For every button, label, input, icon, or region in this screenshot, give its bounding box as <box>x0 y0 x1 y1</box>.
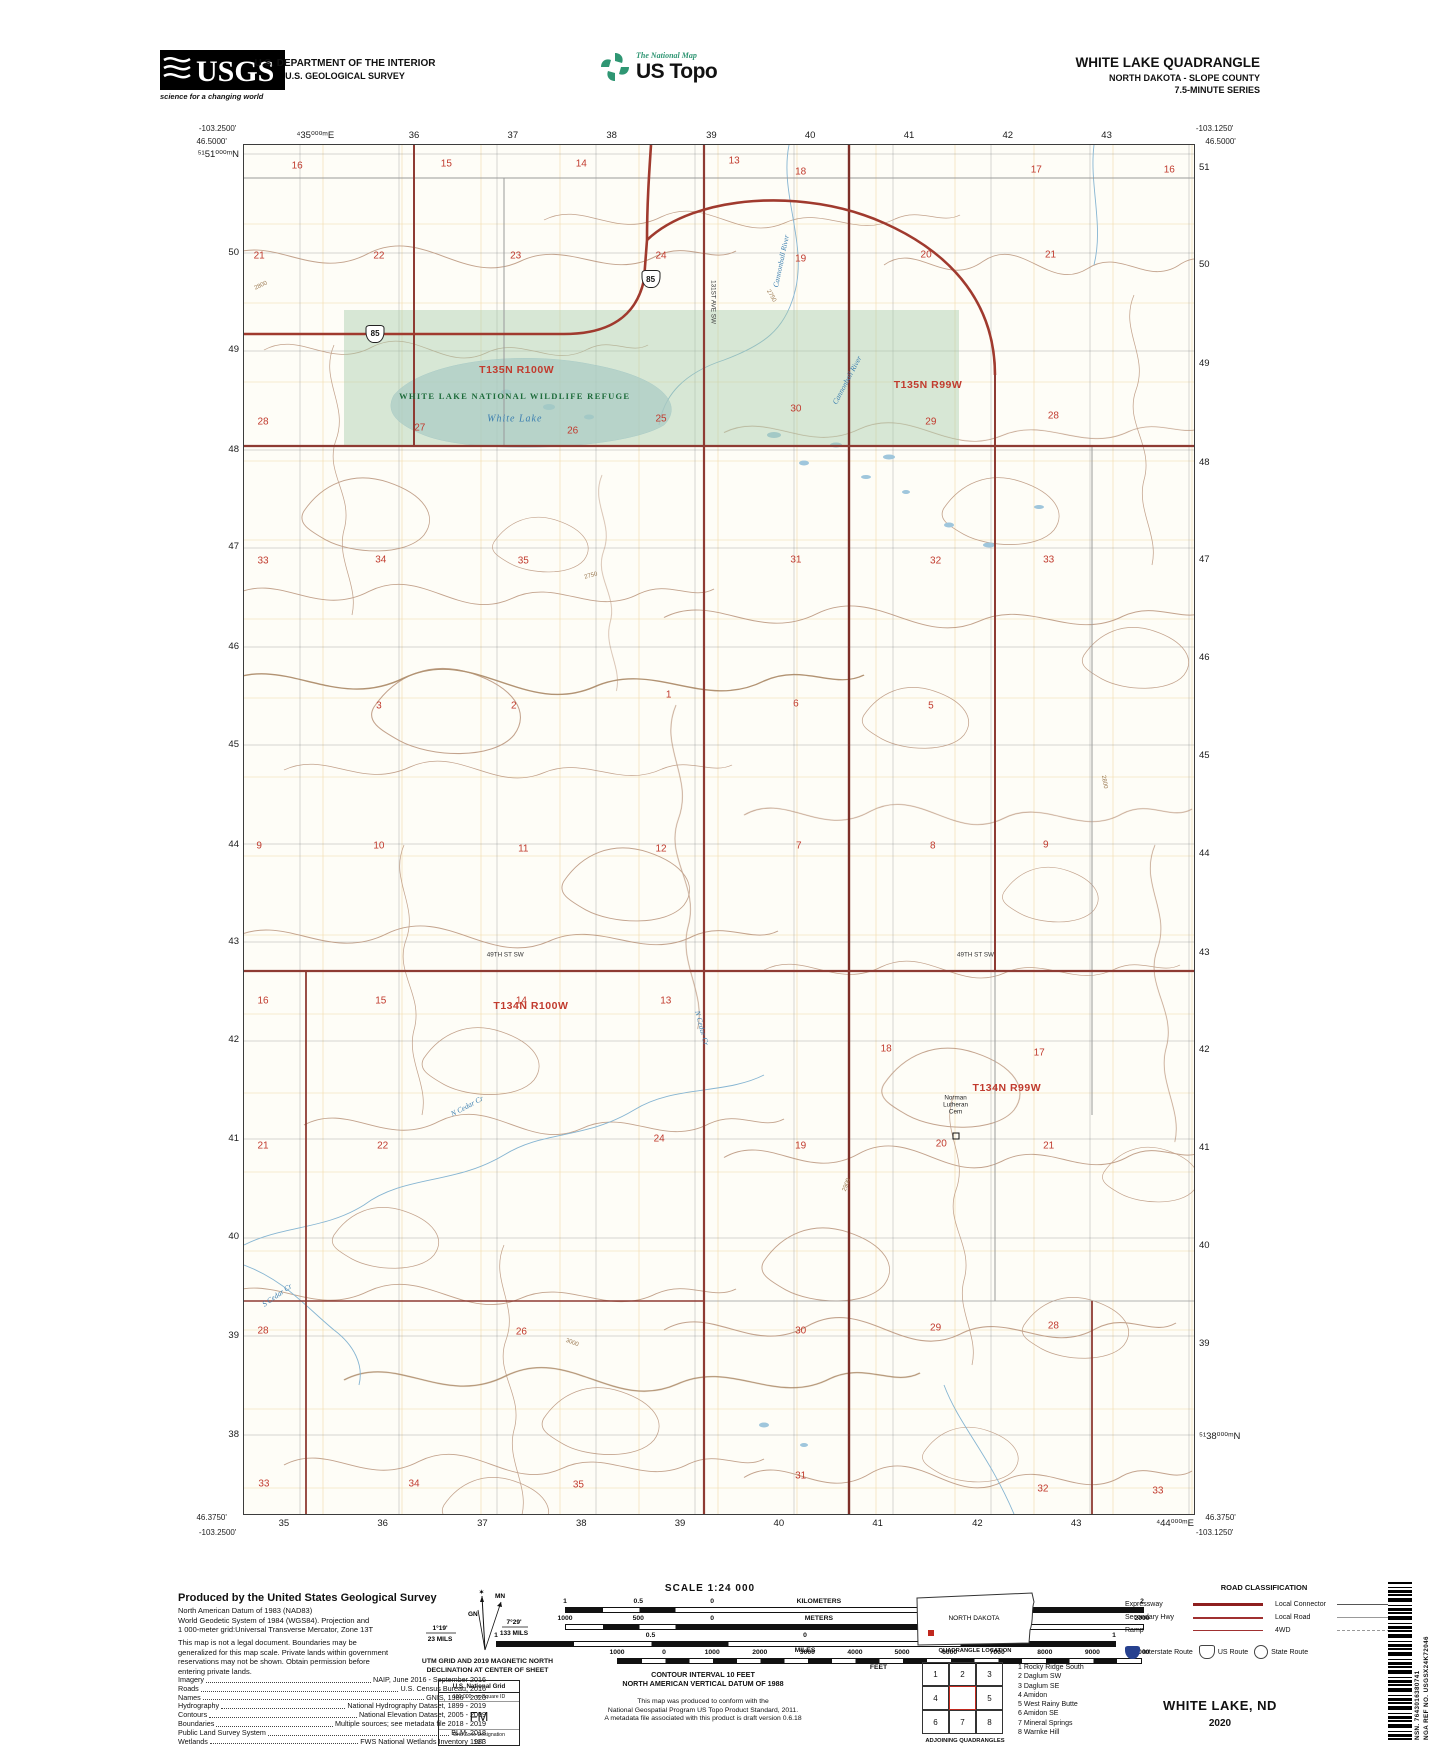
ustopo-logo: The National Map US Topo <box>598 50 717 84</box>
plss-section-number: 30 <box>795 1325 806 1336</box>
adjoining-quadrangles-list: 1 Rocky Ridge South2 Daglum SW3 Daglum S… <box>1018 1663 1084 1737</box>
plss-section-number: 34 <box>408 1478 419 1489</box>
utm-northing-label: 45 <box>228 739 239 750</box>
map-area: -103.2500' 46.5000' -103.1250' 46.5000' … <box>243 144 1195 1515</box>
plss-section-number: 13 <box>660 995 671 1006</box>
scale-tick: 1000 <box>705 1649 720 1656</box>
plss-section-number: 16 <box>1164 164 1175 175</box>
utm-northing-label: 39 <box>1199 1338 1210 1349</box>
plss-section-number: 31 <box>790 554 801 565</box>
wildlife-refuge-name: WHITE LAKE NATIONAL WILDLIFE REFUGE <box>399 391 630 401</box>
usgs-tagline: science for a changing world <box>160 92 263 101</box>
road-class-label: Expressway <box>1125 1601 1193 1608</box>
utm-easting-label: 40 <box>774 1518 785 1529</box>
utm-easting-label: 41 <box>872 1518 883 1529</box>
adjoining-quad-cell: 5 <box>976 1686 1003 1710</box>
plss-section-number: 28 <box>1048 411 1059 422</box>
white-lake-label: White Lake <box>487 413 542 424</box>
interstate-route-shield-icon <box>1125 1646 1140 1659</box>
barcode: NSN. 7643016380741 NGA REF NO. USGSX24K7… <box>1388 1582 1430 1740</box>
ramp-line-sample <box>1193 1630 1263 1631</box>
national-map-brand: The National Map <box>636 51 717 60</box>
utm-northing-label: 41 <box>228 1133 239 1144</box>
road-class-label: 4WD <box>1275 1627 1337 1634</box>
road-class-row: Secondary HwyLocal Road <box>1125 1611 1403 1624</box>
utm-easting-label: 43 <box>1071 1518 1082 1529</box>
utm-easting-label: 39 <box>675 1518 686 1529</box>
lr-line-sample <box>1337 1617 1395 1618</box>
plss-section-number: 31 <box>795 1470 806 1481</box>
dept-line2: U.S. GEOLOGICAL SURVEY <box>240 71 450 81</box>
plss-section-number: 20 <box>936 1139 947 1150</box>
plss-section-number: 21 <box>254 250 265 261</box>
corner-coord-nw-lon: -103.2500' <box>199 124 237 133</box>
plss-section-number: 28 <box>257 416 268 427</box>
plss-section-number: 28 <box>1048 1321 1059 1332</box>
adjoining-quad-center-cell <box>949 1686 976 1710</box>
us-route-label: US Route <box>1218 1649 1248 1656</box>
us-route-shield: 85 <box>366 325 385 343</box>
scale-bar-meters <box>565 1624 1144 1630</box>
scale-tick: 500 <box>633 1615 644 1622</box>
plss-section-number: 34 <box>375 554 386 565</box>
vertical-datum: NORTH AMERICAN VERTICAL DATUM OF 1988 <box>553 1679 853 1688</box>
township-label: T134N R99W <box>973 1082 1042 1094</box>
quad-subtitle: NORTH DAKOTA - SLOPE COUNTY <box>1076 73 1261 83</box>
cemetery-label: Lutheran <box>943 1101 968 1108</box>
plss-section-number: 13 <box>729 156 740 167</box>
utm-northing-label: 40 <box>228 1231 239 1242</box>
true-north-star: ✶ <box>479 1589 484 1596</box>
plss-section-number: 15 <box>441 159 452 170</box>
plss-section-number: 11 <box>518 843 528 854</box>
adjoining-quad-cell: 7 <box>949 1710 976 1734</box>
utm-easting-label: ⁴44⁰⁰⁰ᵐE <box>1156 1518 1194 1529</box>
usng-zone-label: Grid Zone Designation <box>439 1729 519 1738</box>
utm-northing-label: 50 <box>228 247 239 258</box>
adjoining-quad-name: 7 Mineral Springs <box>1018 1719 1084 1728</box>
plss-section-number: 16 <box>257 995 268 1006</box>
plss-section-number: 16 <box>292 160 303 171</box>
plss-section-number: 14 <box>576 159 587 170</box>
plss-section-number: 27 <box>414 423 425 434</box>
scale-tick: 1000 <box>609 1649 624 1656</box>
mn-angle: 7°29' <box>507 1618 522 1626</box>
utm-easting-label: 42 <box>972 1518 983 1529</box>
interstate-route-label: Interstate Route <box>1143 1649 1193 1656</box>
road-class-label: Secondary Hwy <box>1125 1614 1193 1621</box>
plss-section-number: 21 <box>1045 249 1056 260</box>
township-label: T135N R99W <box>894 379 963 391</box>
plss-section-number: 35 <box>573 1480 584 1491</box>
plss-section-number: 33 <box>1152 1485 1163 1496</box>
plss-section-number: 33 <box>258 1478 269 1489</box>
plss-section-number: 29 <box>930 1322 941 1333</box>
lc-line-sample <box>1337 1604 1395 1605</box>
source-key: Wetlands <box>178 1738 208 1746</box>
adjoining-quad-cell: 6 <box>922 1710 949 1734</box>
road-name-label: 49TH ST SW <box>487 952 524 959</box>
scale-tick-row: 10.50KILOMETERS12 <box>565 1598 1142 1607</box>
utm-easting-label: 42 <box>1003 130 1014 141</box>
utm-northing-label: 49 <box>228 344 239 355</box>
plss-section-number: 26 <box>567 426 578 437</box>
gn-angle: 1°19' <box>433 1624 448 1632</box>
corner-coord-se-lat: 46.3750' <box>1205 1513 1235 1522</box>
utm-northing-label: 51 <box>1199 162 1210 173</box>
grid-north-label: GN <box>468 1611 478 1618</box>
plss-section-number: 17 <box>1031 164 1042 175</box>
adjoining-quad-name: 4 Amidon <box>1018 1691 1084 1700</box>
fwd-line-sample <box>1337 1630 1395 1631</box>
plss-section-number: 10 <box>373 840 384 851</box>
adjoining-quad-name: 1 Rocky Ridge South <box>1018 1663 1084 1672</box>
utm-easting-label: 39 <box>706 130 717 141</box>
plss-section-number: 15 <box>375 995 386 1006</box>
road-name-label: 131ST AVE SW <box>710 280 717 324</box>
utm-easting-label: 38 <box>606 130 617 141</box>
plss-section-number: 19 <box>795 1140 806 1151</box>
utm-northing-label: 49 <box>1199 358 1210 369</box>
usng-box: U.S. National Grid 100,000 - m Square ID… <box>438 1680 520 1746</box>
corner-coord-ne-lon: -103.1250' <box>1196 124 1234 133</box>
state-name: NORTH DAKOTA <box>948 1615 1000 1622</box>
plss-section-number: 24 <box>654 1133 665 1144</box>
quadrangle-title-block: WHITE LAKE QUADRANGLE NORTH DAKOTA - SLO… <box>1076 55 1261 95</box>
adjoining-quadrangles-caption: ADJOINING QUADRANGLES <box>895 1738 1035 1744</box>
plss-section-number: 33 <box>257 556 268 567</box>
corner-coord-se-lon: -103.1250' <box>1196 1528 1234 1537</box>
scale-tick: 0.5 <box>646 1632 655 1639</box>
plss-section-number: 7 <box>796 840 802 851</box>
scale-tick-row: 1000010002000300040005000600070008000900… <box>617 1649 1140 1658</box>
scale-tick: 2000 <box>752 1649 767 1656</box>
scale-caption: MILES <box>795 1647 816 1654</box>
township-label: T134N R100W <box>493 1000 568 1012</box>
cemetery-label: Cem <box>949 1108 962 1115</box>
adjoining-quad-name: 8 Warnke Hill <box>1018 1728 1084 1737</box>
utm-northing-label: 39 <box>228 1330 239 1341</box>
utm-easting-label: 36 <box>377 1518 388 1529</box>
adjoining-quadrangles-grid: 12345678 <box>922 1662 1003 1734</box>
usgs-topo-sheet: USGS science for a changing world U.S. D… <box>0 0 1445 1746</box>
scale-tick: 3000 <box>800 1649 815 1656</box>
utm-easting-label: ⁴35⁰⁰⁰ᵐE <box>296 130 334 141</box>
us-route-shield-icon <box>1199 1645 1215 1659</box>
sec-line-sample <box>1193 1617 1263 1619</box>
utm-northing-label: 46 <box>228 641 239 652</box>
utm-northing-label: 42 <box>228 1034 239 1045</box>
declination-diagram: ✶ GN MN 7°29' 133 MILS 1°19' 23 MILS <box>398 1588 573 1656</box>
scale-caption: FEET <box>870 1664 887 1671</box>
road-class-label: Local Connector <box>1275 1601 1337 1608</box>
utm-easting-label: 41 <box>904 130 915 141</box>
utm-northing-label: ⁵¹51⁰⁰⁰ᵐN <box>198 149 239 160</box>
plss-section-number: 24 <box>655 250 666 261</box>
utm-northing-label: 46 <box>1199 652 1210 663</box>
adjoining-quad-cell: 4 <box>922 1686 949 1710</box>
cemetery-marker <box>952 1133 959 1140</box>
state-route-shield-icon <box>1254 1645 1268 1659</box>
utm-northing-label: 42 <box>1199 1044 1210 1055</box>
scale-tick: KILOMETERS <box>797 1598 842 1605</box>
scale-tick: 0 <box>710 1615 714 1622</box>
declination-caption: UTM GRID AND 2019 MAGNETIC NORTHDECLINAT… <box>400 1658 575 1675</box>
quad-series: 7.5-MINUTE SERIES <box>1076 85 1261 95</box>
adjoining-quad-name: 3 Daglum SE <box>1018 1682 1084 1691</box>
corner-coord-nw-lat: 46.5000' <box>196 137 226 146</box>
plss-section-number: 18 <box>795 167 806 178</box>
us-route-shield: 85 <box>641 270 660 288</box>
exp-line-sample <box>1193 1603 1263 1606</box>
us-route-85 <box>244 145 651 334</box>
utm-northing-label: 50 <box>1199 259 1210 270</box>
utm-northing-label: 48 <box>228 444 239 455</box>
corner-coord-ne-lat: 46.5000' <box>1205 137 1235 146</box>
plss-section-number: 23 <box>510 250 521 261</box>
road-classification-legend: ROAD CLASSIFICATION ExpresswayLocal Conn… <box>1125 1583 1403 1659</box>
scale-tick: 1 <box>1112 1632 1116 1639</box>
adjoining-quad-name: 6 Amidon SE <box>1018 1709 1084 1718</box>
utm-northing-label: ⁵¹38⁰⁰⁰ᵐN <box>1199 1431 1240 1442</box>
utm-northing-label: 48 <box>1199 457 1210 468</box>
plss-section-number: 32 <box>1037 1484 1048 1495</box>
utm-easting-label: 43 <box>1101 130 1112 141</box>
plss-section-number: 29 <box>925 416 936 427</box>
scale-tick: 4000 <box>847 1649 862 1656</box>
quadrangle-location-caption: QUADRANGLE LOCATION <box>905 1648 1045 1654</box>
scale-bar-kilometers <box>565 1607 1144 1613</box>
state-locator-map: NORTH DAKOTA <box>912 1590 1042 1648</box>
adjoining-quad-cell: 1 <box>922 1662 949 1686</box>
adjoining-quad-name: 2 Daglum SW <box>1018 1672 1084 1681</box>
plss-section-number: 28 <box>257 1325 268 1336</box>
utm-northing-label: 45 <box>1199 750 1210 761</box>
plss-section-number: 18 <box>881 1043 892 1054</box>
road-class-label: Ramp <box>1125 1627 1193 1634</box>
utm-northing-label: 41 <box>1199 1142 1210 1153</box>
plss-section-number: 19 <box>795 253 806 264</box>
barcode-nsn: NSN. 7643016380741 <box>1414 1582 1421 1740</box>
plss-section-number: 5 <box>928 701 934 712</box>
scale-tick-row: 10005000METERS10002000 <box>565 1615 1142 1624</box>
plss-section-number: 17 <box>1034 1047 1045 1058</box>
quad-location-marker <box>928 1630 934 1636</box>
plss-section-number: 33 <box>1043 554 1054 565</box>
plss-section-number: 1 <box>666 690 672 701</box>
ustopo-title: US Topo <box>636 60 717 84</box>
utm-easting-label: 40 <box>805 130 816 141</box>
plss-section-number: 26 <box>516 1326 527 1337</box>
utm-northing-label: 40 <box>1199 1240 1210 1251</box>
topo-map-canvas <box>244 145 1194 1514</box>
utm-northing-label: 43 <box>228 936 239 947</box>
scale-tick: 0 <box>710 1598 714 1605</box>
contour-interval-note: CONTOUR INTERVAL 10 FEET NORTH AMERICAN … <box>553 1670 853 1688</box>
scale-tick: 9000 <box>1085 1649 1100 1656</box>
state-route-label: State Route <box>1271 1649 1308 1656</box>
road-class-row: Ramp4WD <box>1125 1624 1403 1637</box>
usng-square-id: FM <box>439 1702 519 1729</box>
road-class-row: ExpresswayLocal Connector <box>1125 1598 1403 1611</box>
plss-section-number: 21 <box>257 1140 268 1151</box>
gn-mils: 23 MILS <box>428 1636 453 1643</box>
dept-line1: U.S. DEPARTMENT OF THE INTERIOR <box>240 58 450 69</box>
usng-square-id-label: 100,000 - m Square ID <box>439 1693 519 1702</box>
corner-coord-sw-lon: -103.2500' <box>199 1528 237 1537</box>
plss-section-number: 22 <box>377 1140 388 1151</box>
plss-section-number: 6 <box>793 698 799 709</box>
utm-easting-label: 37 <box>508 130 519 141</box>
scale-tick: 0.5 <box>634 1598 643 1605</box>
sheet-year: 2020 <box>1095 1718 1345 1729</box>
utm-northing-label: 44 <box>1199 848 1210 859</box>
quad-title: WHITE LAKE QUADRANGLE <box>1076 55 1261 70</box>
scale-tick: METERS <box>805 1615 833 1622</box>
department-header: U.S. DEPARTMENT OF THE INTERIOR U.S. GEO… <box>240 58 450 81</box>
plss-section-number: 9 <box>256 840 262 851</box>
adjoining-quad-cell: 2 <box>949 1662 976 1686</box>
barcode-nga-ref: NGA REF NO. USGSX24K72046 <box>1423 1582 1430 1740</box>
plss-section-number: 35 <box>518 556 529 567</box>
plss-section-number: 9 <box>1043 839 1049 850</box>
mn-mils: 133 MILS <box>500 1630 529 1637</box>
wildlife-refuge-overlay <box>344 310 959 445</box>
road-class-label: Local Road <box>1275 1614 1337 1621</box>
adjoining-quad-cell: 8 <box>976 1710 1003 1734</box>
plss-section-number: 20 <box>921 249 932 260</box>
plss-section-number: 3 <box>376 701 382 712</box>
conformance-note: This map was produced to conform with th… <box>528 1698 878 1724</box>
road-classification-title: ROAD CLASSIFICATION <box>1125 1583 1403 1592</box>
corner-coord-sw-lat: 46.3750' <box>196 1513 226 1522</box>
utm-easting-label: 35 <box>279 1518 290 1529</box>
utm-northing-label: 44 <box>228 838 239 849</box>
plss-section-number: 30 <box>790 404 801 415</box>
adjoining-quad-cell: 3 <box>976 1662 1003 1686</box>
barcode-bars <box>1388 1582 1412 1740</box>
plss-section-number: 8 <box>930 840 936 851</box>
scale-title: SCALE 1:24 000 <box>560 1583 860 1594</box>
usng-title: U.S. National Grid <box>439 1681 519 1693</box>
scale-tick: 0 <box>803 1632 807 1639</box>
plss-section-number: 12 <box>655 843 666 854</box>
plss-section-number: 25 <box>655 413 666 424</box>
contour-interval: CONTOUR INTERVAL 10 FEET <box>553 1670 853 1679</box>
sheet-name: WHITE LAKE, ND <box>1095 1698 1345 1713</box>
scale-tick: 0 <box>662 1649 666 1656</box>
utm-northing-label: 43 <box>1199 947 1210 958</box>
cemetery-label: Norman <box>944 1094 966 1101</box>
township-label: T135N R100W <box>479 364 554 376</box>
utm-easting-label: 36 <box>409 130 420 141</box>
ustopo-pinwheel-icon <box>598 50 632 84</box>
plss-section-number: 21 <box>1043 1140 1054 1151</box>
utm-easting-label: 38 <box>576 1518 587 1529</box>
adjoining-quad-name: 5 West Rainy Butte <box>1018 1700 1084 1709</box>
utm-northing-label: 38 <box>228 1429 239 1440</box>
utm-northing-label: 47 <box>1199 554 1210 565</box>
plss-section-number: 22 <box>373 250 384 261</box>
plss-section-number: 32 <box>930 556 941 567</box>
usng-zone: 13T <box>439 1738 519 1746</box>
magnetic-north-label: MN <box>495 1593 505 1600</box>
plss-section-number: 2 <box>511 701 517 712</box>
utm-northing-label: 47 <box>228 541 239 552</box>
utm-easting-label: 37 <box>477 1518 488 1529</box>
road-name-label: 49TH ST SW <box>957 952 994 959</box>
